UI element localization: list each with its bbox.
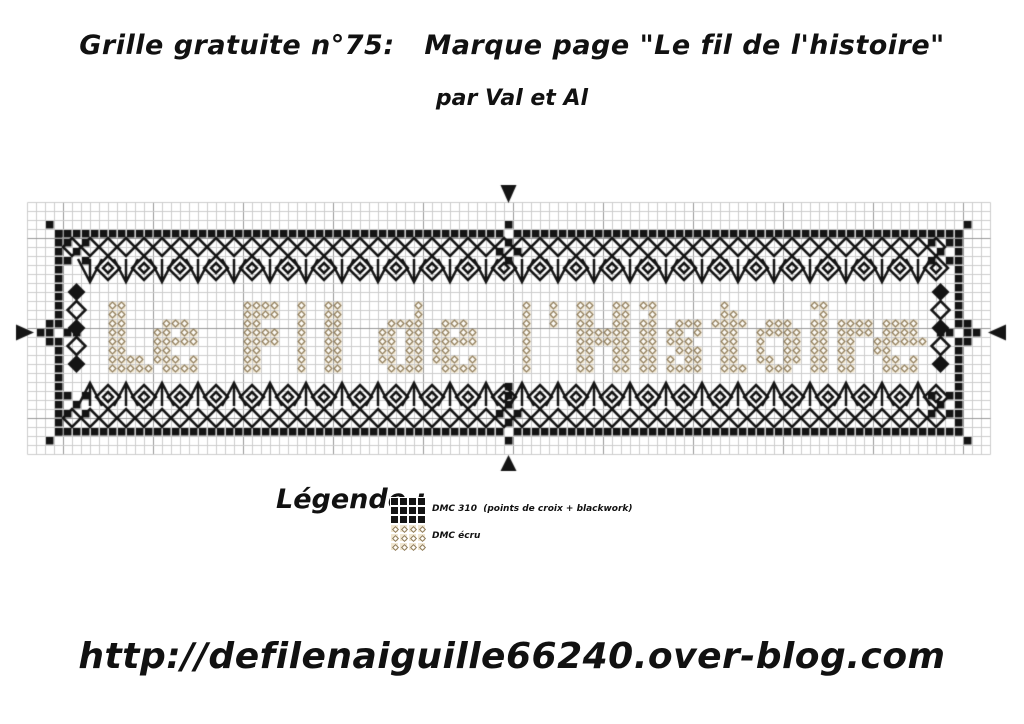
- swatch-cell-black: [417, 506, 426, 515]
- swatch-cell-ecru: [399, 533, 408, 542]
- swatch-cell-ecru: [417, 524, 426, 533]
- pattern-page: Grille gratuite n°75: Marque page "Le fi…: [0, 0, 1024, 724]
- page-title: Grille gratuite n°75: Marque page "Le fi…: [0, 30, 1024, 61]
- swatch-cell-ecru: [408, 542, 417, 551]
- legend-label-dmc-ecru: DMC écru: [432, 531, 480, 541]
- swatch-cell-black: [408, 497, 417, 506]
- swatch-cell-ecru: [417, 542, 426, 551]
- page-subtitle: par Val et Al: [0, 86, 1024, 111]
- legend-swatches: [390, 497, 426, 551]
- swatch-cell-black: [390, 515, 399, 524]
- swatch-cell-ecru: [390, 533, 399, 542]
- swatch-cell-ecru: [390, 524, 399, 533]
- legend-label-dmc310: DMC 310 (points de croix + blackwork): [432, 504, 633, 514]
- swatch-cell-black: [399, 497, 408, 506]
- swatch-cell-ecru: [399, 542, 408, 551]
- swatch-cell-black: [390, 506, 399, 515]
- legend-swatch-dmc310: [390, 497, 426, 524]
- swatch-cell-ecru: [399, 524, 408, 533]
- footer-url: http://defilenaiguille66240.over-blog.co…: [0, 636, 1024, 677]
- legend-swatch-dmc-ecru: [390, 524, 426, 551]
- swatch-cell-ecru: [408, 533, 417, 542]
- swatch-cell-black: [417, 515, 426, 524]
- swatch-cell-ecru: [417, 533, 426, 542]
- swatch-cell-black: [408, 506, 417, 515]
- swatch-cell-black: [399, 506, 408, 515]
- swatch-cell-ecru: [390, 542, 399, 551]
- swatch-cell-black: [399, 515, 408, 524]
- cross-stitch-chart: [0, 175, 1024, 475]
- swatch-cell-black: [408, 515, 417, 524]
- swatch-cell-black: [417, 497, 426, 506]
- swatch-cell-ecru: [408, 524, 417, 533]
- swatch-cell-black: [390, 497, 399, 506]
